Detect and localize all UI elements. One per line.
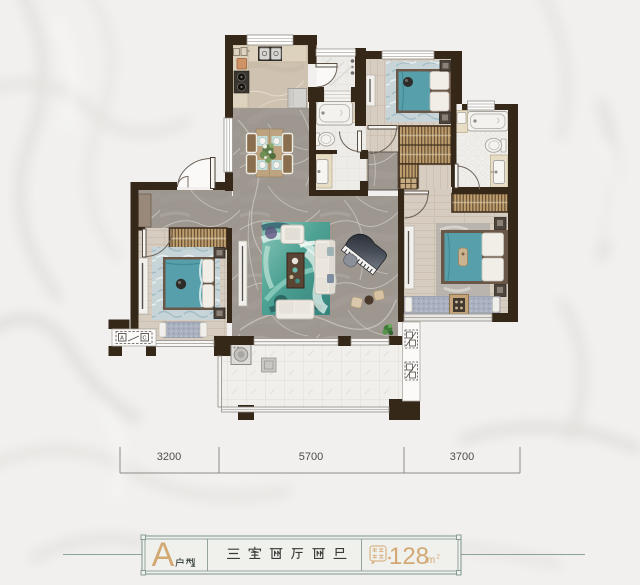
svg-text:5700: 5700: [299, 451, 323, 463]
svg-text:A: A: [120, 336, 124, 342]
svg-text:128: 128: [389, 543, 429, 570]
svg-text:m: m: [427, 555, 435, 566]
svg-text:3200: 3200: [157, 451, 181, 463]
svg-text:A: A: [152, 536, 175, 574]
svg-text:C: C: [143, 336, 147, 342]
svg-text:3700: 3700: [450, 451, 474, 463]
